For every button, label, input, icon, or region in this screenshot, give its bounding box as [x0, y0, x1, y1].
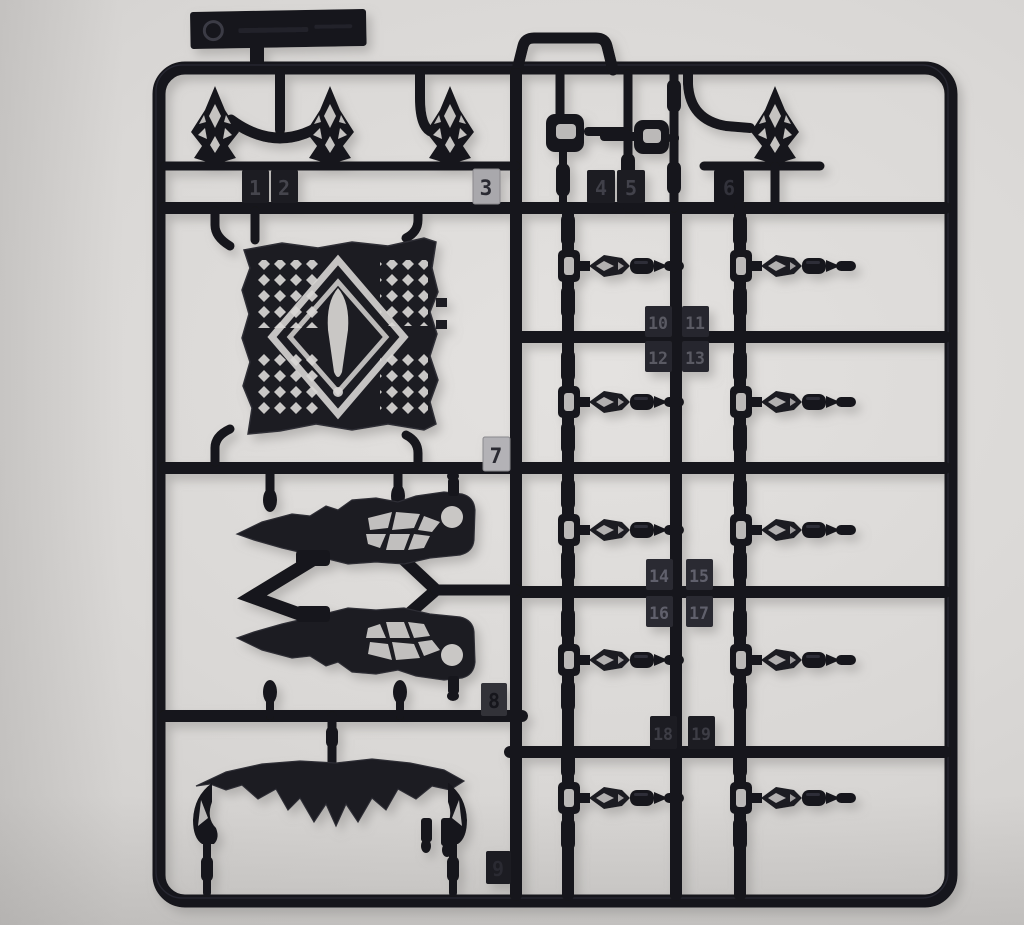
svg-text:15: 15	[689, 567, 709, 586]
svg-text:11: 11	[685, 314, 705, 333]
part-number-tag: 17	[686, 596, 713, 627]
svg-text:18: 18	[653, 725, 673, 744]
part-number-tag: 7	[483, 437, 510, 471]
svg-text:9: 9	[492, 857, 504, 881]
svg-text:8: 8	[488, 689, 500, 713]
part-number-tag: 1	[242, 170, 269, 203]
svg-text:19: 19	[691, 725, 711, 744]
embossed-text-mark	[314, 24, 352, 29]
svg-text:6: 6	[723, 176, 735, 200]
photo-of-model-kit-sprue: 1 2 3 4 5 6 7	[0, 0, 1024, 925]
part-number-tag: 15	[686, 559, 713, 590]
svg-text:10: 10	[648, 314, 668, 333]
svg-text:2: 2	[278, 176, 290, 200]
svg-text:3: 3	[480, 176, 493, 200]
part-number-tag: 6	[714, 170, 744, 203]
part-number-tag: 14	[646, 559, 673, 590]
part-number-tag: 3	[473, 169, 500, 204]
part-number-tag: 16	[646, 596, 673, 627]
part-number-tag: 19	[688, 716, 715, 749]
part-number-tag: 8	[481, 683, 507, 716]
part-number-tag: 11	[682, 306, 709, 337]
part-number-tag: 12	[645, 341, 672, 372]
svg-text:4: 4	[595, 176, 607, 200]
part-number-tag: 5	[617, 170, 645, 203]
part-number-tag: 2	[271, 170, 298, 203]
part-number-tag: 9	[486, 851, 511, 884]
part-number-tag: 10	[645, 306, 672, 337]
svg-text:13: 13	[685, 349, 705, 368]
lattice-panel-part	[242, 238, 447, 434]
svg-text:1: 1	[249, 176, 261, 200]
part-number-tag: 13	[682, 341, 709, 372]
svg-text:14: 14	[649, 567, 669, 586]
part-number-tag: 18	[650, 716, 677, 749]
sprue-photo-scene: 1 2 3 4 5 6 7	[0, 0, 1024, 925]
svg-text:16: 16	[649, 604, 669, 623]
svg-text:12: 12	[648, 349, 668, 368]
svg-text:17: 17	[689, 604, 709, 623]
svg-text:7: 7	[490, 444, 503, 468]
part-number-tag: 4	[587, 170, 615, 203]
runner-label-plate	[190, 9, 367, 49]
svg-text:5: 5	[625, 176, 637, 200]
